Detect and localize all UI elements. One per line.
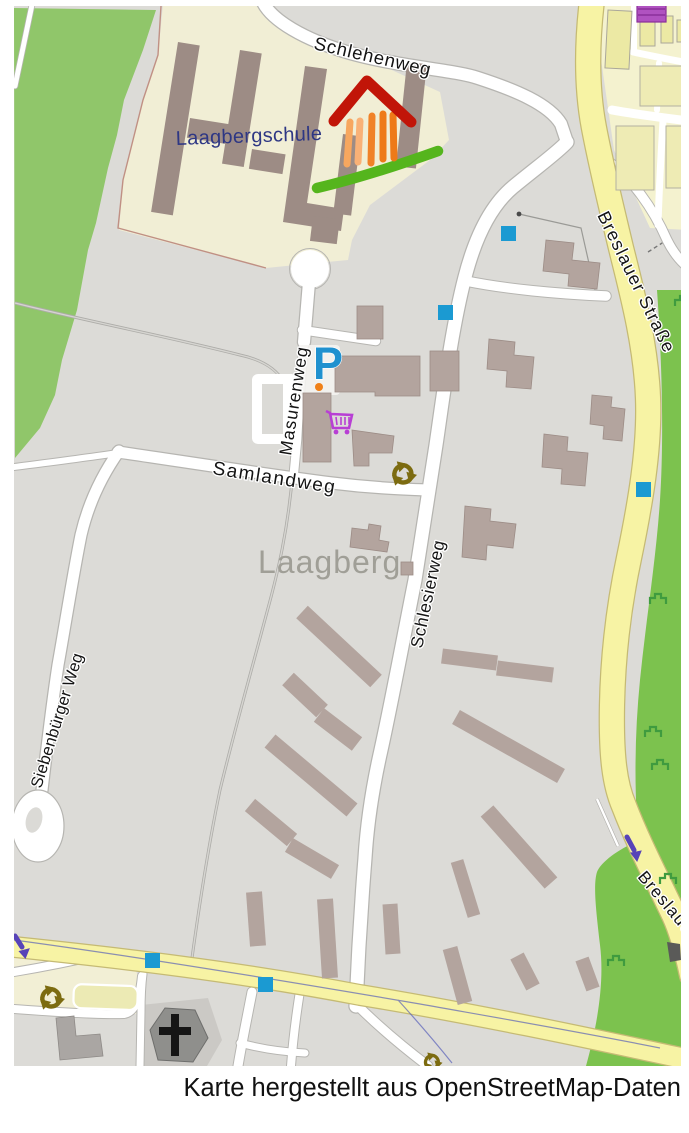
svg-text:Karte hergestellt aus OpenStre: Karte hergestellt aus OpenStreetMap-Date… bbox=[183, 1074, 681, 1102]
svg-text:P: P bbox=[313, 338, 343, 389]
svg-text:Laagberg: Laagberg bbox=[258, 544, 401, 580]
